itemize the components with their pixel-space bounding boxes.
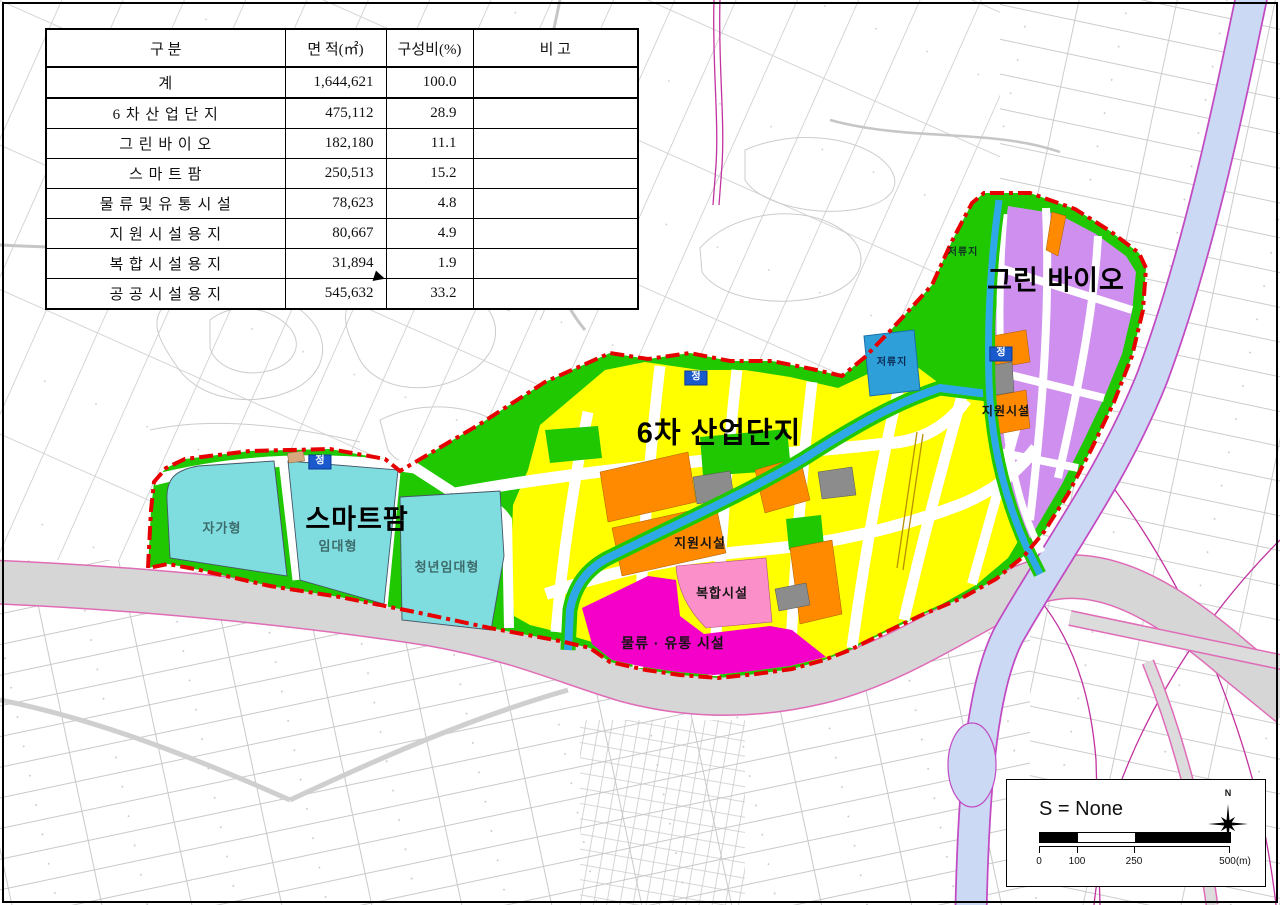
row-ratio: 11.1: [386, 129, 473, 159]
row-ratio: 100.0: [386, 67, 473, 98]
smart-farm-zone-label: 스마트팜: [305, 507, 408, 534]
compass-rose: N: [1205, 788, 1251, 850]
scale-bar-segment: [1078, 833, 1135, 842]
scale-tick: [1077, 846, 1078, 853]
compass-north-label: N: [1205, 788, 1251, 798]
row-area: 475,112: [285, 98, 386, 129]
row-area: 545,632: [285, 279, 386, 310]
row-category: 공 공 시 설 용 지: [46, 279, 285, 310]
smart-farm-parcel-self: [167, 461, 287, 576]
retention-pond-label-ne: 저류지: [948, 248, 979, 258]
table-row: 계 1,644,621 100.0: [46, 67, 638, 98]
land-use-statistics-table: 구 분 면 적(㎡) 구성비(%) 비 고 계 1,644,621 100.0 …: [45, 28, 639, 310]
scale-tick: [1039, 846, 1040, 853]
row-category: 지 원 시 설 용 지: [46, 219, 285, 249]
row-category: 물 류 및 유 통 시 설: [46, 189, 285, 219]
table-row: 6 차 산 업 단 지 475,112 28.9: [46, 98, 638, 129]
row-note: [473, 189, 638, 219]
smart-farm-youth-label: 청년임대형: [415, 561, 480, 574]
mixed-facility-label: 복합시설: [696, 587, 748, 600]
row-ratio: 28.9: [386, 98, 473, 129]
row-area: 80,667: [285, 219, 386, 249]
row-note: [473, 249, 638, 279]
row-category: 계: [46, 67, 285, 98]
row-note: [473, 159, 638, 189]
row-area: 78,623: [285, 189, 386, 219]
row-note: [473, 67, 638, 98]
scale-bar: [1039, 832, 1231, 843]
smart-farm-self-label: 자가형: [203, 522, 242, 535]
plan-sheet: 6차 산업단지 그린 바이오 스마트팜 자가형 임대형 청년임대형 지원시설 지…: [0, 0, 1280, 905]
table-row: 복 합 시 설 용 지 31,894 1.9: [46, 249, 638, 279]
row-ratio: 33.2: [386, 279, 473, 310]
table-row: 물 류 및 유 통 시 설 78,623 4.8: [46, 189, 638, 219]
scale-tick-label: 250: [1126, 856, 1143, 867]
smart-farm-rent-label: 임대형: [319, 540, 358, 553]
table-row: 스 마 트 팜 250,513 15.2: [46, 159, 638, 189]
row-category: 6 차 산 업 단 지: [46, 98, 285, 129]
small-building: [287, 451, 304, 463]
scale-tick-label: 100: [1069, 856, 1086, 867]
table-row: 지 원 시 설 용 지 80,667 4.9: [46, 219, 638, 249]
green-bio-zone-label: 그린 바이오: [987, 268, 1125, 295]
scale-box: S = None 0 100 250 500(m) N: [1006, 779, 1266, 887]
row-category: 스 마 트 팜: [46, 159, 285, 189]
support-facility-label-ne: 지원시설: [982, 405, 1030, 417]
row-ratio: 1.9: [386, 249, 473, 279]
row-note: [473, 129, 638, 159]
support-facility-label-mid: 지원시설: [674, 537, 726, 550]
row-note: [473, 279, 638, 310]
scale-tick-label: 500(m): [1219, 856, 1251, 867]
row-note: [473, 98, 638, 129]
retention-pond-label-mid: 저류지: [877, 358, 908, 368]
row-area: 250,513: [285, 159, 386, 189]
row-ratio: 4.9: [386, 219, 473, 249]
bus-stop-marker: 정: [684, 371, 707, 386]
row-ratio: 4.8: [386, 189, 473, 219]
col-header-category: 구 분: [46, 29, 285, 67]
col-header-ratio: 구성비(%): [386, 29, 473, 67]
scale-text: S = None: [1039, 798, 1123, 821]
bus-stop-marker: 정: [308, 455, 331, 470]
row-area: 31,894: [285, 249, 386, 279]
scale-bar-segment: [1040, 833, 1078, 842]
row-category: 그 린 바 이 오: [46, 129, 285, 159]
row-ratio: 15.2: [386, 159, 473, 189]
logistics-facility-label: 물류 · 유통 시설: [621, 636, 725, 650]
scale-tick: [1134, 846, 1135, 853]
table-row: 그 린 바 이 오 182,180 11.1: [46, 129, 638, 159]
row-area: 1,644,621: [285, 67, 386, 98]
row-note: [473, 219, 638, 249]
industrial-zone-label: 6차 산업단지: [637, 420, 802, 449]
table-row: 공 공 시 설 용 지 545,632 33.2: [46, 279, 638, 310]
table-header-row: 구 분 면 적(㎡) 구성비(%) 비 고: [46, 29, 638, 67]
row-category: 복 합 시 설 용 지: [46, 249, 285, 279]
scale-tick-label: 0: [1036, 856, 1042, 867]
compass-star-icon: [1205, 798, 1251, 850]
bus-stop-marker: 정: [989, 347, 1012, 362]
col-header-area: 면 적(㎡): [285, 29, 386, 67]
col-header-note: 비 고: [473, 29, 638, 67]
row-area: 182,180: [285, 129, 386, 159]
